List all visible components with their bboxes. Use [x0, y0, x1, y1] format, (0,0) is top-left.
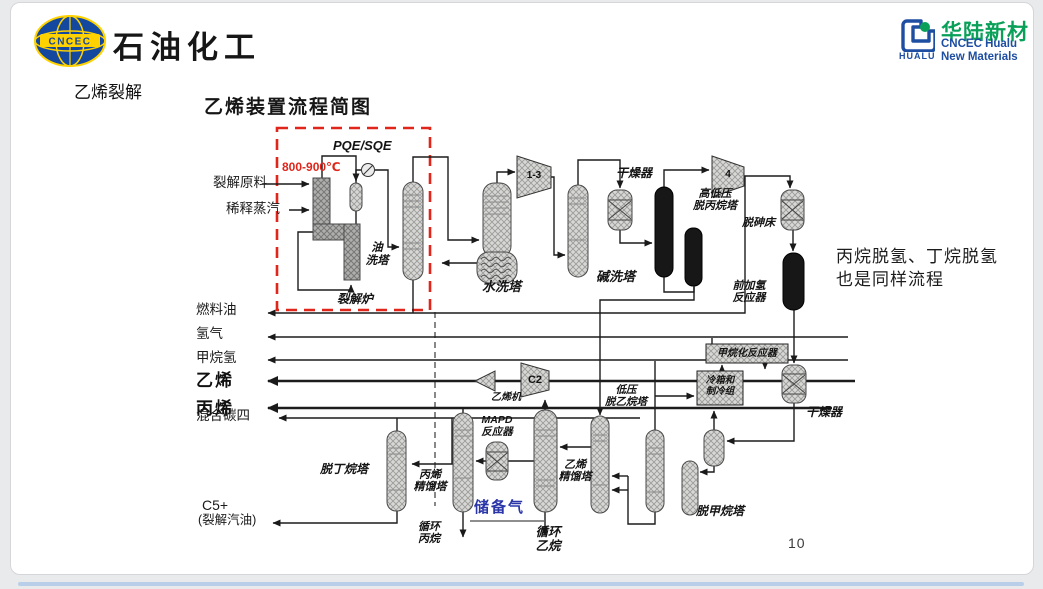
product-ethylene-label: 乙烯 [196, 366, 234, 391]
ethylene-machine-label: 乙烯机 [491, 392, 521, 403]
recycle-propane-label-line2: 丙烷 [413, 533, 445, 545]
oil-wash-tower-label: 油 洗塔 [360, 242, 394, 268]
front-hydrogenation-label-line1: 前加氢 [725, 280, 773, 292]
compressor-c2-label: C2 [523, 374, 547, 386]
side-note-line2: 也是同样流程 [836, 265, 944, 290]
product-fuel-oil-label: 燃料油 [196, 303, 237, 318]
propylene-fractionator-label-line2: 精馏塔 [411, 481, 449, 493]
water-wash-tower-vessel [483, 183, 511, 257]
storage-gas-label: 储备气 [474, 500, 525, 517]
dryer1-vessel [608, 190, 632, 230]
quench-exchanger-vessel [350, 183, 362, 211]
coldbox-label-line2: 制冷组 [699, 387, 741, 398]
recycle-propane-label: 循环 丙烷 [413, 521, 445, 546]
product-hydrogen-label: 氢气 [196, 327, 223, 342]
demethanizer-label: 脱甲烷塔 [696, 505, 744, 518]
recycle-ethane-label: 循环 乙烷 [530, 525, 566, 553]
deethanizer-label-line1: 低压 [600, 385, 652, 397]
depropanizer-label-line1: 高低压 [684, 188, 746, 200]
water-wash-tower-label: 水洗塔 [482, 280, 521, 295]
quench-valve-symbol [362, 164, 375, 177]
cracking-furnace-label: 裂解炉 [337, 293, 373, 306]
ethylene-machine-expander [475, 371, 495, 391]
cracking-feed-label: 裂解原料 [213, 176, 267, 191]
mapd-reactor-label-line1: MAPD [474, 415, 520, 427]
recycle-propane-label-line1: 循环 [413, 521, 445, 533]
compressor-1-3-label: 1-3 [519, 170, 549, 181]
methanation-reactor-label: 甲烷化反应器 [709, 348, 785, 359]
product-c5-label: C5+ [202, 498, 228, 513]
caustic-wash-tower-label: 碱洗塔 [596, 270, 635, 285]
mapd-reactor-label: MAPD 反应器 [474, 415, 520, 439]
coldbox-label: 冷箱和 制冷组 [699, 376, 741, 397]
furnace-temperature-label: 800-900℃ [282, 161, 341, 174]
product-c5-note-label: (裂解汽油) [198, 514, 256, 528]
depropanizer-label-line2: 脱丙烷塔 [684, 200, 746, 212]
demethanizer-column-vessel [646, 430, 664, 512]
front-hydrogenation-label-line2: 反应器 [725, 292, 773, 304]
deethanizer-label: 低压 脱乙烷塔 [600, 385, 652, 409]
depropanizer-column-2-vessel [685, 228, 702, 286]
side-note-line1: 丙烷脱氢、丁烷脱氢 [836, 242, 998, 267]
mapd-reactor-label-line2: 反应器 [474, 427, 520, 439]
knockout-drum-vessel [704, 430, 724, 466]
propylene-fractionator-label-line1: 丙烯 [411, 469, 449, 481]
dearsenication-bed-label: 脱砷床 [742, 217, 775, 229]
ethylene-fractionator-label-line1: 乙烯 [554, 459, 596, 471]
oil-wash-tower-label-line1: 油 [360, 242, 394, 255]
debutanizer-label: 脱丁烷塔 [320, 463, 368, 476]
ethylene-fractionator-label-line2: 精馏塔 [554, 471, 596, 483]
deethanizer-label-line2: 脱乙烷塔 [600, 397, 652, 409]
depropanizer-label: 高低压 脱丙烷塔 [684, 188, 746, 213]
recycle-ethane-label-line2: 乙烷 [530, 539, 566, 553]
caustic-wash-tower-vessel [568, 185, 588, 277]
debutanizer-column-vessel [387, 431, 406, 511]
product-mixed-c4-label: 混合碳四 [196, 409, 250, 424]
dryer2-label: 干燥器 [806, 406, 842, 419]
product-methane-hydrogen-label: 甲烷氢 [196, 351, 237, 366]
page-number: 10 [788, 535, 806, 551]
oil-wash-tower-vessel [403, 182, 423, 280]
pqe-sqe-label: PQE/SQE [333, 139, 392, 154]
oil-wash-tower-label-line2: 洗塔 [360, 255, 394, 268]
propylene-fractionator-label: 丙烯 精馏塔 [411, 469, 449, 494]
recycle-ethane-label-line1: 循环 [530, 525, 566, 539]
slide-canvas: { "window": { "page_number": "10" }, "he… [0, 0, 1043, 589]
compressor-4-label: 4 [716, 169, 740, 180]
dilution-steam-label: 稀释蒸汽 [226, 202, 280, 217]
dryer1-label: 干燥器 [616, 167, 652, 180]
depropanizer-column-1-vessel [655, 187, 673, 277]
front-hydrogenation-reactor-label: 前加氢 反应器 [725, 280, 773, 305]
dearsenication-bed-vessel [781, 190, 804, 230]
dryer2-vessel [782, 365, 806, 403]
ethylene-fractionator-label: 乙烯 精馏塔 [554, 459, 596, 484]
mapd-reactor-vessel [486, 442, 508, 480]
propylene-fractionator-vessel [453, 413, 473, 512]
front-hydrogenation-reactor-vessel [783, 253, 804, 310]
